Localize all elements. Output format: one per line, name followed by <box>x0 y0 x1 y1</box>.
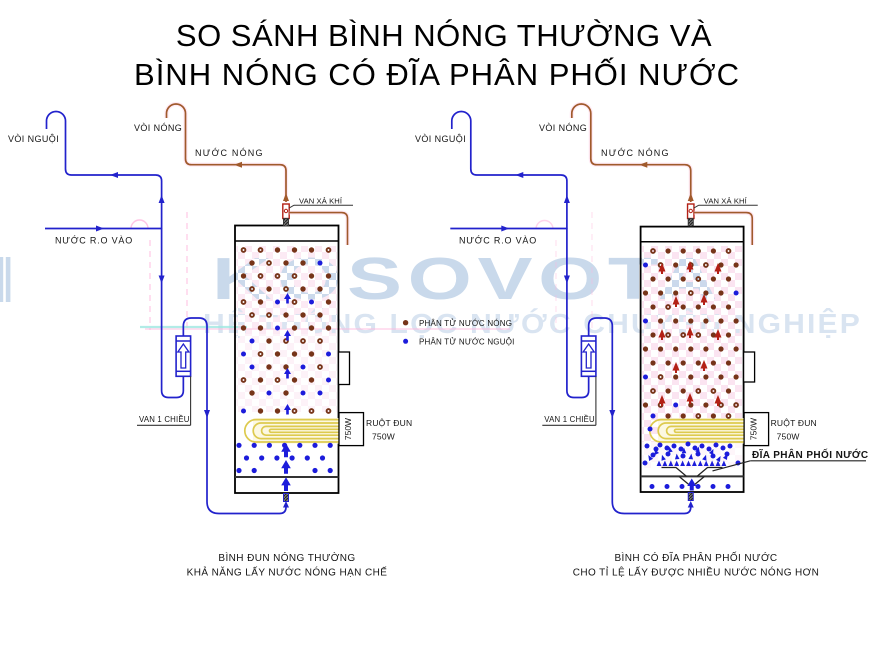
svg-text:VAN XẢ KHÍ: VAN XẢ KHÍ <box>299 196 343 205</box>
svg-text:NƯỚC NÓNG: NƯỚC NÓNG <box>195 148 264 158</box>
svg-text:BÌNH CÓ ĐĨA PHÂN PHỐI NƯỚC: BÌNH CÓ ĐĨA PHÂN PHỐI NƯỚC <box>614 550 777 564</box>
svg-text:NƯỚC NÓNG: NƯỚC NÓNG <box>601 148 670 158</box>
svg-text:NƯỚC R.O VÀO: NƯỚC R.O VÀO <box>55 236 133 246</box>
svg-text:VÒI NGUỘI: VÒI NGUỘI <box>415 134 466 144</box>
svg-text:750W: 750W <box>777 432 800 442</box>
svg-text:750W: 750W <box>748 418 758 440</box>
svg-text:RUỘT ĐUN: RUỘT ĐUN <box>771 418 817 428</box>
svg-text:NƯỚC R.O VÀO: NƯỚC R.O VÀO <box>459 236 537 246</box>
svg-text:RUỘT ĐUN: RUỘT ĐUN <box>366 418 412 428</box>
svg-text:KHẢ NĂNG LẤY NƯỚC NÓNG HẠN CHẾ: KHẢ NĂNG LẤY NƯỚC NÓNG HẠN CHẾ <box>187 566 388 579</box>
svg-text:750W: 750W <box>343 418 353 440</box>
svg-text:750W: 750W <box>372 432 395 442</box>
svg-text:PHÂN TỬ NƯỚC NGUỘI: PHÂN TỬ NƯỚC NGUỘI <box>419 338 515 347</box>
svg-text:BÌNH NÓNG CÓ ĐĨA PHÂN PHỐI NƯỚ: BÌNH NÓNG CÓ ĐĨA PHÂN PHỐI NƯỚC <box>134 56 740 92</box>
svg-text:ĐĨA PHÂN PHỐI NƯỚC: ĐĨA PHÂN PHỐI NƯỚC <box>752 447 868 461</box>
svg-text:PHÂN TỬ NƯỚC NÓNG: PHÂN TỬ NƯỚC NÓNG <box>419 319 512 328</box>
svg-text:VÒI NÓNG: VÒI NÓNG <box>539 123 587 133</box>
svg-text:VAN 1 CHIỀU: VAN 1 CHIỀU <box>139 414 190 424</box>
svg-text:BÌNH ĐUN NÓNG THƯỜNG: BÌNH ĐUN NÓNG THƯỜNG <box>218 551 355 564</box>
svg-text:CHO TỈ LỆ LẤY ĐƯỢC NHIỀU NƯỚC: CHO TỈ LỆ LẤY ĐƯỢC NHIỀU NƯỚC NÓNG HƠN <box>573 566 820 579</box>
svg-text:VÒI NÓNG: VÒI NÓNG <box>134 123 182 133</box>
svg-text:VÒI NGUỘI: VÒI NGUỘI <box>8 134 59 144</box>
svg-text:SO SÁNH BÌNH NÓNG THƯỜNG VÀ: SO SÁNH BÌNH NÓNG THƯỜNG VÀ <box>176 18 712 53</box>
svg-text:VAN XẢ KHÍ: VAN XẢ KHÍ <box>704 196 748 205</box>
svg-text:VAN 1 CHIỀU: VAN 1 CHIỀU <box>544 414 595 424</box>
